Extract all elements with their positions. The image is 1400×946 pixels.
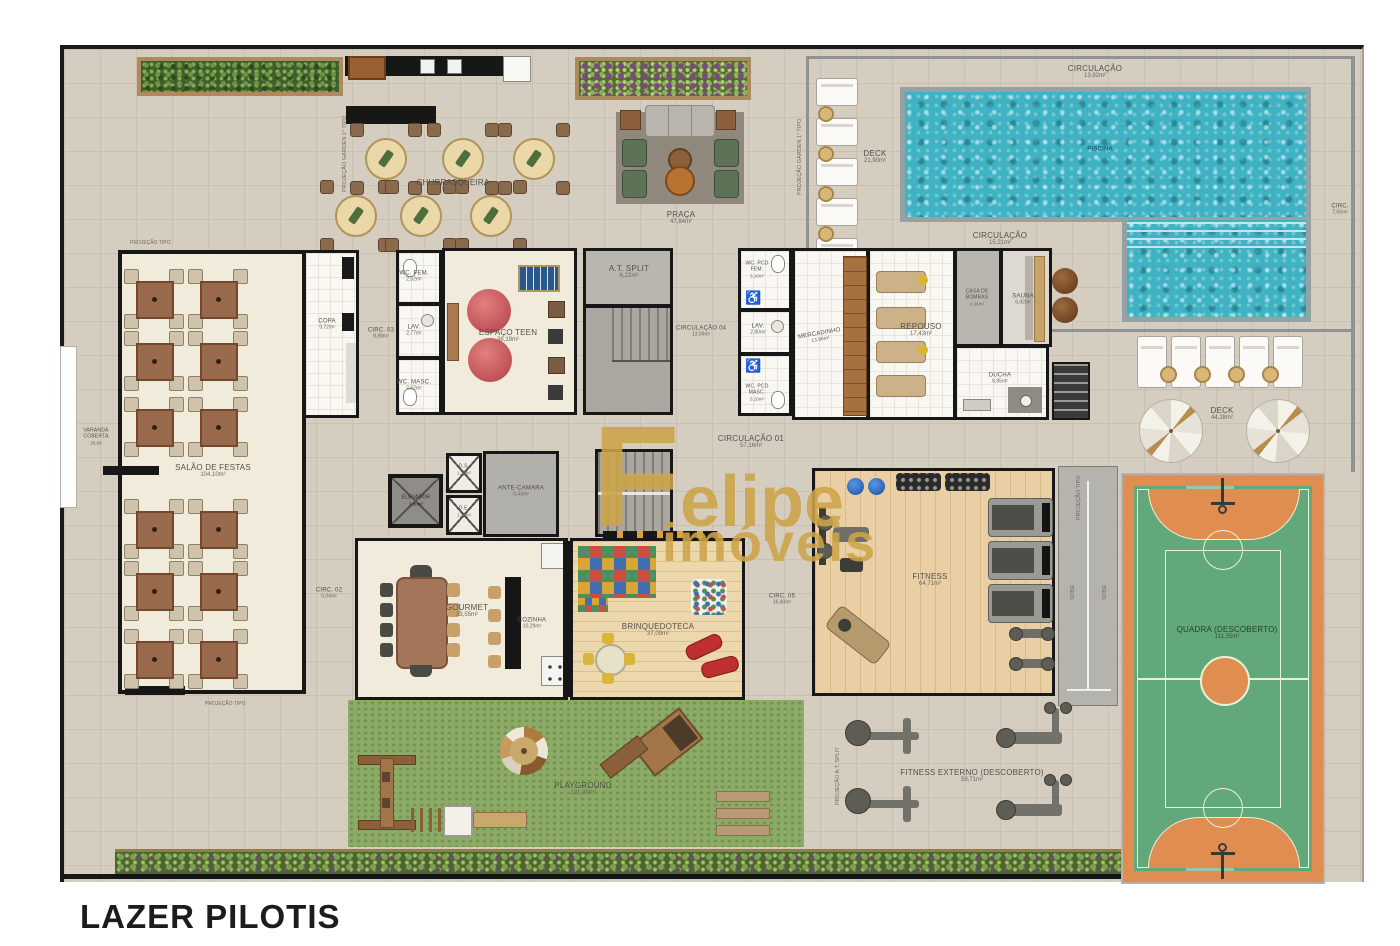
label-varanda: VARANDA COBERTA25,08 (79, 429, 113, 446)
deck-side-table (818, 186, 834, 202)
label-projecao-garden-1: PROJEÇÃO GARDEN 1° TIPO (342, 116, 348, 192)
stove (541, 656, 565, 686)
label-espaco-teen: ESPAÇO TEEN36,19m² (479, 328, 537, 344)
label-piscina: PISCINA (1087, 147, 1112, 154)
label-projecao-tipo-3: PROJEÇÃO TIPO (1076, 475, 1082, 520)
label-copa: COPA9,72m² (318, 319, 335, 332)
wc-pcd-fem-room: ♿ (738, 248, 792, 311)
kids-chair (624, 653, 635, 665)
chair (380, 623, 393, 637)
chair (447, 623, 460, 637)
rest-bed (876, 375, 926, 397)
climb-ladder (411, 808, 443, 832)
workout-bench (833, 527, 869, 542)
center-circle (1200, 656, 1250, 706)
label-repouso: REPOUSO17,43m² (900, 322, 941, 338)
outdoor-gym-bench (996, 716, 1078, 758)
party-table (124, 397, 182, 455)
label-lav1: LAV.2,77m² (406, 325, 422, 338)
free-throw-circle-top (1203, 530, 1243, 570)
varanda-edge (60, 346, 77, 508)
access-ramp (1058, 466, 1118, 706)
kids-table (595, 644, 627, 676)
label-wc-pcd-masc: WC. PCD MASC.3,16m² (740, 385, 774, 402)
party-table (124, 629, 182, 687)
chair (380, 583, 393, 597)
party-table (124, 561, 182, 619)
sports-court (1123, 475, 1323, 882)
end-chair (410, 565, 432, 577)
label-de: D.E.1,38m² (447, 507, 481, 518)
umbrella (1246, 399, 1310, 463)
teen-seat (548, 301, 565, 318)
label-sobe-2: SOBE (1102, 585, 1108, 600)
label-lav2: LAV.2,80m² (750, 324, 766, 337)
copa-appliance (342, 313, 354, 331)
exercise-ball (868, 478, 885, 495)
label-circ03: CIRC. 038,88m² (368, 328, 394, 341)
label-circ02: CIRC. 026,04m² (316, 588, 342, 601)
copa-appliance (342, 257, 354, 279)
flower-deco (918, 275, 928, 285)
pool-right-wall (1351, 56, 1355, 472)
teen-seat (548, 357, 565, 374)
pool-lounger (816, 158, 858, 186)
potted-plant (1052, 268, 1078, 294)
pool-lounger (816, 198, 858, 226)
label-salao: SALÃO DE FESTAS104,10m² (175, 463, 251, 479)
sink (421, 314, 434, 327)
flower-planter-top-center (575, 57, 751, 100)
bean-bag (467, 289, 511, 333)
label-casa-bombas: CASA DE BOMBAS4,26m² (960, 290, 994, 307)
chair (380, 603, 393, 617)
label-quadra: QUADRA (DESCOBERTO)111,35m² (1177, 625, 1278, 641)
deck-side-table (1160, 366, 1177, 383)
hoop-pole-top (1221, 478, 1224, 504)
weight-plate (817, 543, 833, 559)
label-playground: PLAYGROUND101,49m² (554, 781, 611, 797)
party-table (188, 499, 246, 557)
kids-chair (602, 673, 614, 684)
pool-lounger (816, 78, 858, 106)
label-praca: PRAÇA47,84m² (667, 210, 696, 226)
tv-unit (548, 385, 563, 400)
deck-lounger (1273, 336, 1303, 388)
floor-plan-canvas: { "title": "LAZER PILOTIS", "watermark":… (0, 0, 1400, 946)
hoop-pole-bottom (1221, 853, 1224, 879)
kids-chair (583, 653, 594, 665)
party-table (124, 499, 182, 557)
backboard-bottom (1211, 852, 1235, 855)
outdoor-gym-machine (845, 712, 923, 762)
label-antecamara: ANTE-CAMARA5,43m² (498, 486, 544, 499)
bar-stool (488, 632, 501, 645)
kids-chair (602, 633, 614, 644)
bbq-cabinet (503, 56, 531, 82)
label-circulacao01: CIRCULAÇÃO 0157,16m² (718, 434, 784, 450)
tv-unit (548, 329, 563, 344)
label-deck-direito: DECK44,28m² (1210, 406, 1233, 422)
swing-seat (382, 772, 390, 782)
label-projecao-tipo-2: PROJEÇÃO TIPO (205, 701, 245, 707)
sofa (645, 105, 715, 137)
treadmill (988, 584, 1053, 623)
potted-plant (1052, 297, 1078, 323)
label-elevador: ELEVADOR3,80m² (399, 496, 433, 507)
weight-plate (817, 515, 833, 531)
outdoor-gym-bench (996, 788, 1078, 830)
rowing-machine (824, 604, 892, 665)
label-projecao-tipo-1: PROJEÇÃO TIPO (130, 240, 170, 246)
deck-side-table (818, 146, 834, 162)
hedge-planter-top-left (137, 57, 343, 96)
dumbbell (1013, 629, 1051, 638)
outdoor-gym-machine (845, 780, 923, 830)
label-fitness-externo: FITNESS EXTERNO (DESCOBERTO)59,71m² (900, 768, 1044, 784)
fire-pit-large (665, 166, 695, 196)
exercise-ball (847, 478, 864, 495)
fridge (541, 543, 565, 569)
bbq-grill (348, 56, 386, 80)
bbq-sink (447, 59, 462, 74)
swing-post (380, 758, 394, 828)
label-wc-pcd-fem: WC. PCD FEM.3,16m² (740, 262, 774, 279)
wheelchair-icon: ♿ (745, 358, 761, 374)
picnic-bench (716, 791, 770, 802)
stair-treads (612, 308, 670, 360)
treadmill (988, 541, 1053, 580)
label-wc-fem: WC. FEM.2,52m² (399, 271, 428, 284)
label-at-split: A.T. SPLIT6,22m² (609, 264, 649, 280)
chair (447, 583, 460, 597)
workout-bench (840, 558, 863, 572)
label-fitness: FITNESS64,71m² (912, 572, 947, 588)
party-table (124, 269, 182, 327)
brinquedoteca-top-wall (603, 531, 718, 538)
dumbbell-rack (945, 473, 990, 491)
toy-car (700, 654, 741, 679)
hoop-ring-top (1218, 505, 1227, 514)
pool-steps (1127, 222, 1306, 248)
swimming-pool-arm (1122, 220, 1311, 322)
deck-side-table (1228, 366, 1245, 383)
toy-pile (691, 579, 727, 615)
stairs-block (583, 305, 673, 415)
chair (447, 643, 460, 657)
label-circ-direita: CIRC.7,65m² (1331, 204, 1348, 217)
label-circulacao04: CIRCULAÇÃO 0413,09m² (676, 326, 726, 339)
balance-beam (473, 812, 527, 828)
bar-stool (488, 586, 501, 599)
end-chair (410, 665, 432, 677)
play-mat-ext (578, 598, 608, 612)
shower-drain (1020, 395, 1032, 407)
exterior-stairs (1052, 362, 1090, 420)
dumbbell (1013, 659, 1051, 668)
party-table (188, 331, 246, 389)
party-table (188, 269, 246, 327)
label-gourmet: GOURMET33,55m² (446, 603, 488, 619)
dining-table (396, 577, 448, 669)
label-circulacao-piscina: CIRCULAÇÃO13,92m² (1068, 64, 1122, 80)
party-table (188, 629, 246, 687)
label-churrasqueira: CHURRASQUEIRA52,84m² (417, 178, 490, 194)
ducha-bench (963, 399, 991, 411)
spring-toy (443, 805, 473, 837)
chair (380, 643, 393, 657)
hoop-ring-bottom (1218, 843, 1227, 852)
door-leaf (447, 303, 459, 361)
market-shelf (843, 256, 867, 416)
play-mat (578, 546, 656, 598)
label-wc-masc: WC. MASC.2,52m² (397, 380, 431, 393)
wheelchair-icon: ♿ (745, 290, 761, 306)
side-table (620, 110, 641, 130)
umbrella (1139, 399, 1203, 463)
brinquedoteca-room (570, 538, 745, 700)
armchair (714, 170, 739, 198)
label-circulacao-piscina2: CIRCULAÇÃO15,21m² (973, 231, 1027, 247)
deck-side-table (1262, 366, 1279, 383)
copa-counter (346, 343, 356, 403)
garden-strip-bottom (115, 849, 1125, 879)
deck-side-table (1194, 366, 1211, 383)
label-deck-esquerdo: DECK21,90m² (863, 149, 886, 165)
side-table (716, 110, 736, 130)
swing-seat (382, 798, 390, 808)
armchair (622, 139, 647, 167)
picnic-bench (716, 808, 770, 819)
label-sobe-1: SOBE (1070, 585, 1076, 600)
foosball-table (518, 265, 560, 292)
armchair (714, 139, 739, 167)
pool-lounger (816, 118, 858, 146)
label-projecao-at-split: PROJEÇÃO A.T. SPLIT (835, 747, 841, 805)
shower-stall (1008, 387, 1042, 413)
stairs-core (595, 449, 673, 537)
label-sauna: SAUNA6,92m² (1012, 294, 1034, 307)
label-brinquedoteca: BRINQUEDOTECA37,09m² (622, 622, 694, 638)
free-throw-circle-bottom (1203, 788, 1243, 828)
armchair (622, 170, 647, 198)
copa-room (303, 250, 359, 418)
bbq-sink (420, 59, 435, 74)
flower-deco (918, 345, 928, 355)
label-ds: D.S.1,38m² (447, 465, 481, 476)
deck-side-table (818, 106, 834, 122)
dumbbell-rack (896, 473, 941, 491)
label-projecao-garden-2: PROJEÇÃO GARDEN 1° TIPO (797, 119, 803, 195)
party-table (124, 331, 182, 389)
merry-go-round (500, 727, 548, 775)
sauna-bench (1034, 256, 1045, 342)
party-table (188, 397, 246, 455)
salao-wall-stub (103, 466, 159, 475)
bar-stool (488, 609, 501, 622)
label-ducha: DUCHA6,85m² (989, 373, 1011, 386)
treadmill (988, 498, 1053, 537)
playground-lawn (348, 700, 804, 847)
swimming-pool-main (900, 87, 1311, 222)
bar-stool (488, 655, 501, 668)
label-cozinha: COZINHA10,29m² (518, 618, 546, 631)
party-table (188, 561, 246, 619)
sink (771, 320, 784, 333)
label-circ05: CIRC. 0516,40m² (769, 594, 795, 607)
picnic-bench (716, 825, 770, 836)
deck-side-table (818, 226, 834, 242)
bean-bag (468, 338, 512, 382)
page-title: LAZER PILOTIS (80, 898, 341, 936)
